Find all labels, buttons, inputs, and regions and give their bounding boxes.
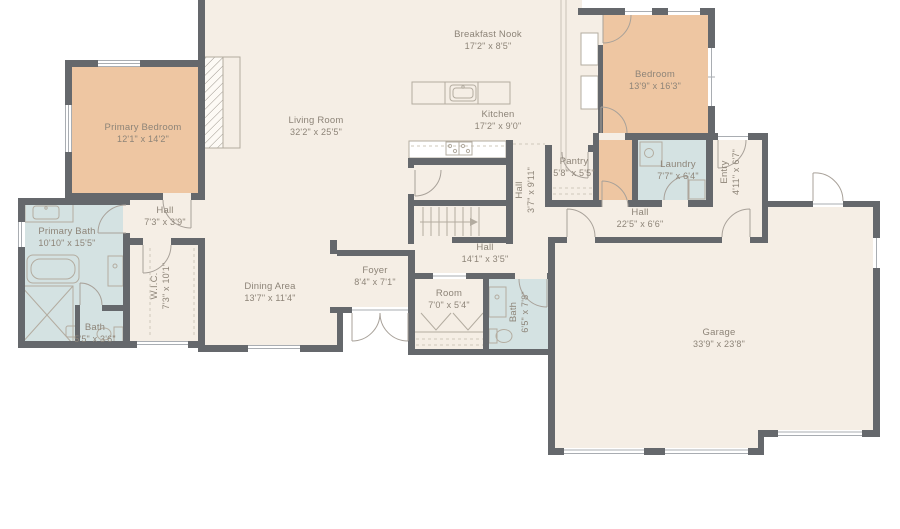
window bbox=[98, 60, 140, 67]
fireplace-hatch bbox=[203, 57, 223, 148]
linen-niche bbox=[581, 33, 598, 65]
door-threshold bbox=[433, 273, 466, 279]
garage-door bbox=[564, 448, 644, 455]
window bbox=[248, 345, 300, 352]
front-door-right bbox=[380, 313, 408, 341]
window bbox=[625, 8, 652, 15]
door-garage-exterior bbox=[813, 173, 843, 201]
floor-plan-drawing bbox=[0, 0, 900, 529]
mid-bath-fill bbox=[489, 279, 548, 349]
primary-bedroom-fill bbox=[72, 67, 198, 193]
linen-niche bbox=[581, 76, 598, 109]
garage-door bbox=[778, 430, 862, 437]
window bbox=[18, 222, 25, 247]
door-threshold bbox=[718, 133, 748, 140]
front-door-left bbox=[352, 313, 380, 341]
window bbox=[708, 48, 715, 106]
bedroom-fill bbox=[603, 15, 708, 133]
door-threshold bbox=[813, 201, 843, 207]
garage-door bbox=[665, 448, 748, 455]
window bbox=[65, 105, 72, 152]
window bbox=[668, 8, 700, 15]
door-threshold bbox=[352, 307, 408, 313]
window bbox=[137, 341, 188, 348]
bedroom-vestibule-fill bbox=[599, 140, 632, 200]
floor-plan: Breakfast Nook17'2" x 8'5"Living Room32'… bbox=[0, 0, 900, 529]
small-bath-fill bbox=[81, 311, 123, 341]
window bbox=[873, 238, 880, 268]
